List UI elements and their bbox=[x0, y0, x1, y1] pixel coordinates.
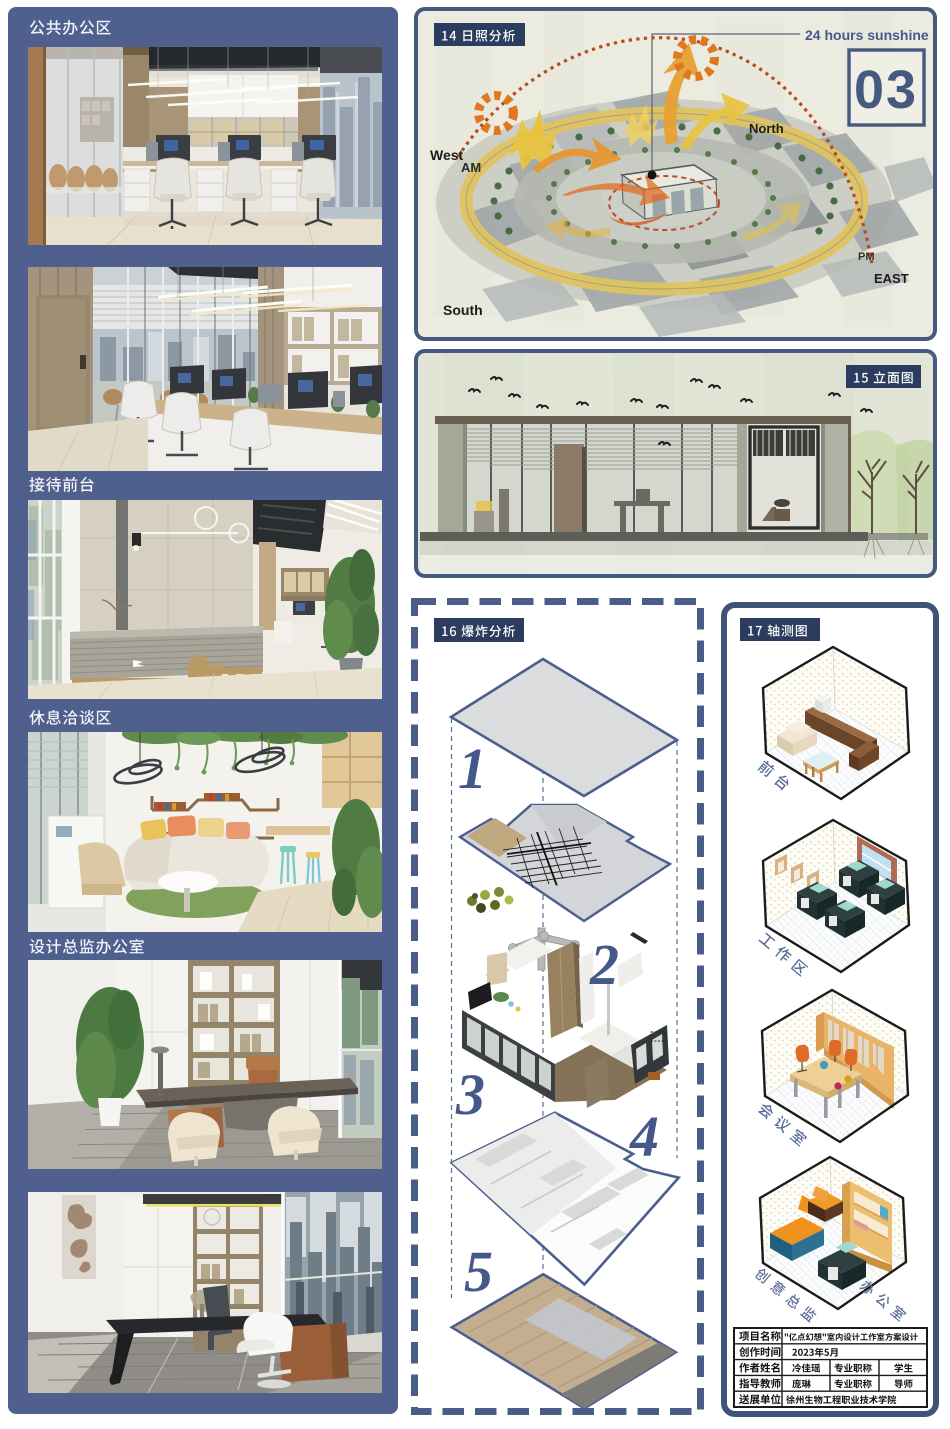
svg-text:24 hours sunshine: 24 hours sunshine bbox=[805, 27, 929, 43]
svg-text:West: West bbox=[430, 147, 464, 163]
svg-text:03: 03 bbox=[854, 60, 918, 120]
svg-text:South: South bbox=[443, 302, 483, 318]
svg-text:EAST: EAST bbox=[874, 271, 909, 286]
svg-text:North: North bbox=[749, 121, 784, 136]
svg-text:PM: PM bbox=[858, 251, 875, 263]
svg-text:AM: AM bbox=[461, 160, 481, 175]
